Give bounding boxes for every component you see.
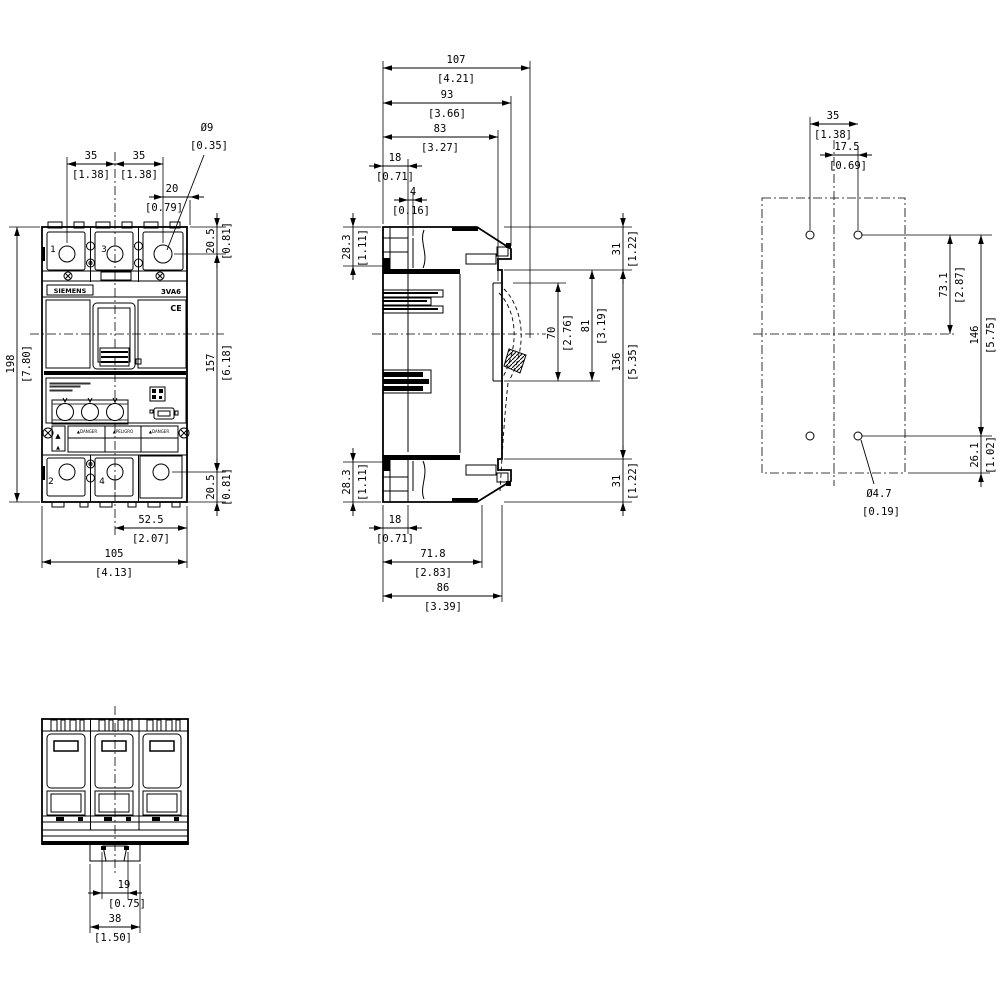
dim-terminal-edge-20-inch: [0.79] [145,202,183,214]
dim-rear-step-4-inch: [0.16] [392,205,430,217]
dim-height-198-inch: [7.80] [21,345,33,383]
dim-hole-to-center-73-1-inch: [2.87] [954,266,966,304]
label-warning-cell-3: ▲DANGER [149,429,169,434]
dim-center-to-edge-52-5-inch: [2.07] [132,533,170,545]
dim-hole-to-center-73-1-mm: 73.1 [938,272,950,297]
dim-top-28-3-mm: 28.3 [341,234,353,259]
label-warning-triangle-bottom: ▲ [56,445,60,451]
dim-bottom-28-3-mm: 28.3 [341,469,353,494]
dim-top-28-3-inch: [1.11] [357,229,369,267]
dim-terminal-edge-20-mm: 20 [166,183,179,195]
label-warning-cell-1: ▲DANGER [77,429,97,434]
dim-height-198-mm: 198 [5,355,17,374]
dim-depth-83-mm: 83 [434,123,447,135]
dim-depth-71-8-mm: 71.8 [420,548,445,560]
dim-rear-18-bottom-mm: 18 [389,514,402,526]
dim-hole-dia-4-7-inch: [0.19] [862,506,900,518]
dim-top-31-inch: [1.22] [627,230,639,268]
dim-hole-pitch-35-inch: [1.38] [814,129,852,141]
dim-hole-to-bottom-26-1-mm: 26.1 [969,442,981,467]
dim-rear-18-top-mm: 18 [389,152,402,164]
dim-depth-107-mm: 107 [447,54,466,66]
dim-half-pitch-17-5-mm: 17.5 [834,141,859,153]
dim-clip-slot-19-mm: 19 [118,879,131,891]
dim-terminal-span-157-mm: 157 [205,354,217,373]
dim-depth-93-inch: [3.66] [428,108,466,120]
dim-hole-to-bottom-26-1-inch: [1.02] [985,436,997,474]
dim-depth-86-inch: [3.39] [424,601,462,613]
dimension-drawing-page: 35[1.38]35[1.38]20[0.79]Ø9[0.35]20.5[0.8… [0,0,1000,1000]
dim-clip-width-38-mm: 38 [109,913,122,925]
dim-bottom-28-3-inch: [1.11] [357,463,369,501]
label-terminal-3: 3 [101,245,107,255]
dim-top-31-mm: 31 [611,243,623,256]
dim-terminal-hole-dia-9-mm: Ø9 [201,122,214,134]
dim-handle-81-inch: [3.19] [596,307,608,345]
dim-bottom-31-inch: [1.22] [627,462,639,500]
dim-depth-71-8-inch: [2.83] [414,567,452,579]
dim-rear-step-4-mm: 4 [410,186,416,198]
label-terminal-1: 1 [50,245,56,255]
dim-bottom-to-terminal-20-5-inch: [0.81] [221,468,233,506]
label-terminal-4: 4 [99,477,105,487]
dim-pole-pitch-right-mm: 35 [133,150,146,162]
dim-bottom-31-mm: 31 [611,475,623,488]
dim-bottom-to-terminal-20-5-mm: 20.5 [205,474,217,499]
dimension-drawing: 35[1.38]35[1.38]20[0.79]Ø9[0.35]20.5[0.8… [0,0,1000,1000]
dim-depth-107-inch: [4.21] [437,73,475,85]
dim-handle-70-mm: 70 [546,327,558,340]
dim-handle-81-mm: 81 [580,320,592,333]
dim-pole-pitch-right-inch: [1.38] [120,169,158,181]
dim-center-to-edge-52-5-mm: 52.5 [138,514,163,526]
dim-depth-93-mm: 93 [441,89,454,101]
dim-hole-pitch-35-mm: 35 [827,110,840,122]
dim-depth-83-inch: [3.27] [421,142,459,154]
dim-pole-pitch-left-mm: 35 [85,150,98,162]
dim-pole-pitch-left-inch: [1.38] [72,169,110,181]
dim-terminal-hole-dia-9-inch: [0.35] [190,140,228,152]
dim-rear-18-bottom-inch: [0.71] [376,533,414,545]
dim-mid-136-mm: 136 [611,353,623,372]
label-terminal-2: 2 [48,477,54,487]
dim-hole-span-146-inch: [5.75] [985,316,997,354]
label-model: 3VA6 [161,288,181,296]
dim-top-to-terminal-20-5-mm: 20.5 [205,228,217,253]
dim-rear-18-top-inch: [0.71] [376,171,414,183]
dim-width-105-inch: [4.13] [95,567,133,579]
dim-hole-dia-4-7-mm: Ø4.7 [866,488,891,500]
dim-depth-86-mm: 86 [437,582,450,594]
dim-width-105-mm: 105 [105,548,124,560]
dim-handle-70-inch: [2.76] [562,314,574,352]
label-warning-cell-2: ▲PELIGRO [113,429,133,434]
label-warning-triangle-top: ▲ [55,432,61,440]
dim-hole-span-146-mm: 146 [969,326,981,345]
label-ce-mark: CE [170,304,181,313]
label-brand: SIEMENS [54,287,87,295]
dim-top-to-terminal-20-5-inch: [0.81] [221,222,233,260]
dim-mid-136-inch: [5.35] [627,343,639,381]
dim-half-pitch-17-5-inch: [0.69] [829,160,867,172]
dim-clip-slot-19-inch: [0.75] [108,898,146,910]
dim-clip-width-38-inch: [1.50] [94,932,132,944]
dim-terminal-span-157-inch: [6.18] [221,344,233,382]
